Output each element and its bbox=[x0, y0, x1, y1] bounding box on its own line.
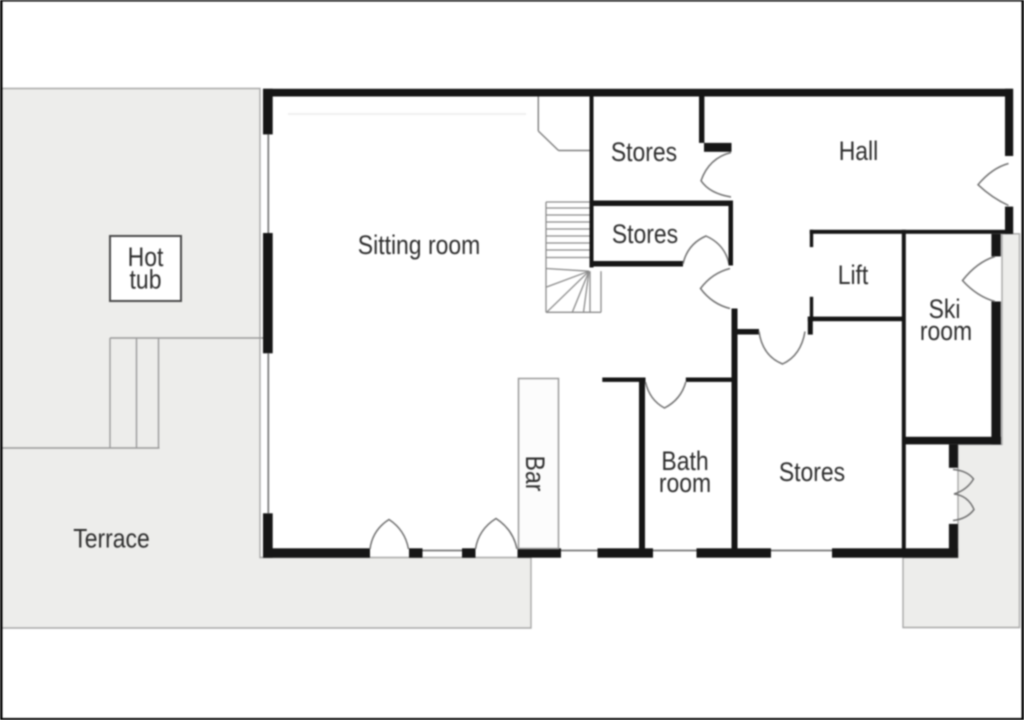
svg-text:Bar: Bar bbox=[520, 456, 550, 492]
svg-text:Sitting room: Sitting room bbox=[358, 230, 480, 260]
svg-text:Stores: Stores bbox=[611, 137, 677, 167]
svg-text:Stores: Stores bbox=[779, 457, 845, 487]
svg-text:room: room bbox=[920, 316, 972, 346]
svg-text:Lift: Lift bbox=[838, 260, 869, 290]
svg-text:Terrace: Terrace bbox=[73, 524, 150, 554]
svg-text:Hall: Hall bbox=[839, 136, 879, 166]
svg-text:room: room bbox=[659, 468, 711, 498]
svg-text:Stores: Stores bbox=[612, 219, 678, 249]
svg-text:tub: tub bbox=[130, 265, 162, 295]
